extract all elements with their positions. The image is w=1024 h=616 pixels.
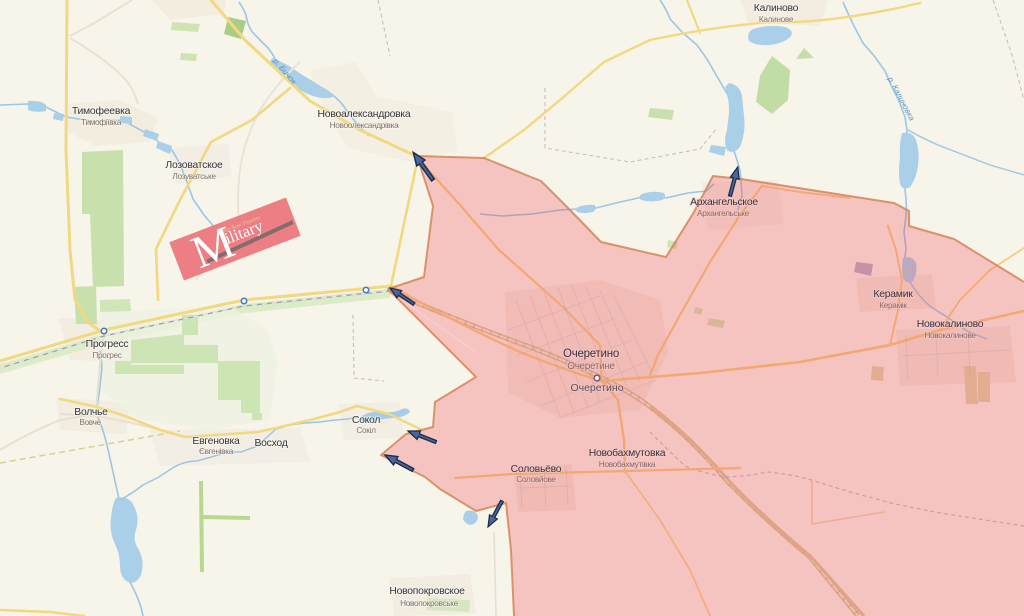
svg-text:Керамік: Керамік (879, 300, 907, 310)
svg-text:Вовче: Вовче (79, 417, 101, 427)
svg-text:Новобахмутовка: Новобахмутовка (589, 447, 666, 459)
svg-text:Тимофеевка: Тимофеевка (72, 105, 131, 117)
svg-text:Очеретино: Очеретино (570, 382, 623, 394)
svg-text:Новокалинове: Новокалинове (924, 330, 976, 340)
svg-text:Сокіл: Сокіл (356, 425, 376, 435)
svg-text:Лозуватське: Лозуватське (172, 171, 216, 181)
svg-text:Новобахмутівка: Новобахмутівка (599, 459, 656, 469)
svg-text:Євгенівка: Євгенівка (199, 446, 234, 456)
svg-text:Новоолександрівка: Новоолександрівка (330, 120, 399, 130)
svg-text:Керамик: Керамик (873, 289, 913, 300)
svg-text:Новоалександровка: Новоалександровка (318, 109, 411, 120)
svg-text:Соловйове: Соловйове (516, 474, 556, 484)
svg-text:Прогрес: Прогрес (92, 350, 121, 360)
svg-text:Прогресс: Прогресс (86, 339, 129, 350)
svg-text:Новопокровське: Новопокровське (400, 598, 458, 608)
svg-text:Очеретино: Очеретино (563, 348, 619, 360)
svg-text:Архангельское: Архангельское (690, 197, 758, 208)
svg-text:Калинове: Калинове (759, 14, 794, 24)
svg-text:Тимофіївка: Тимофіївка (81, 117, 122, 127)
svg-text:Восход: Восход (254, 438, 287, 449)
svg-text:Калиново: Калиново (754, 3, 799, 14)
svg-text:Архангельське: Архангельське (697, 208, 750, 218)
svg-text:Новопокровское: Новопокровское (389, 586, 465, 597)
svg-text:Лозоватское: Лозоватское (165, 160, 223, 171)
svg-text:Очеретине: Очеретине (567, 361, 615, 372)
svg-text:Новокалиново: Новокалиново (917, 319, 984, 330)
